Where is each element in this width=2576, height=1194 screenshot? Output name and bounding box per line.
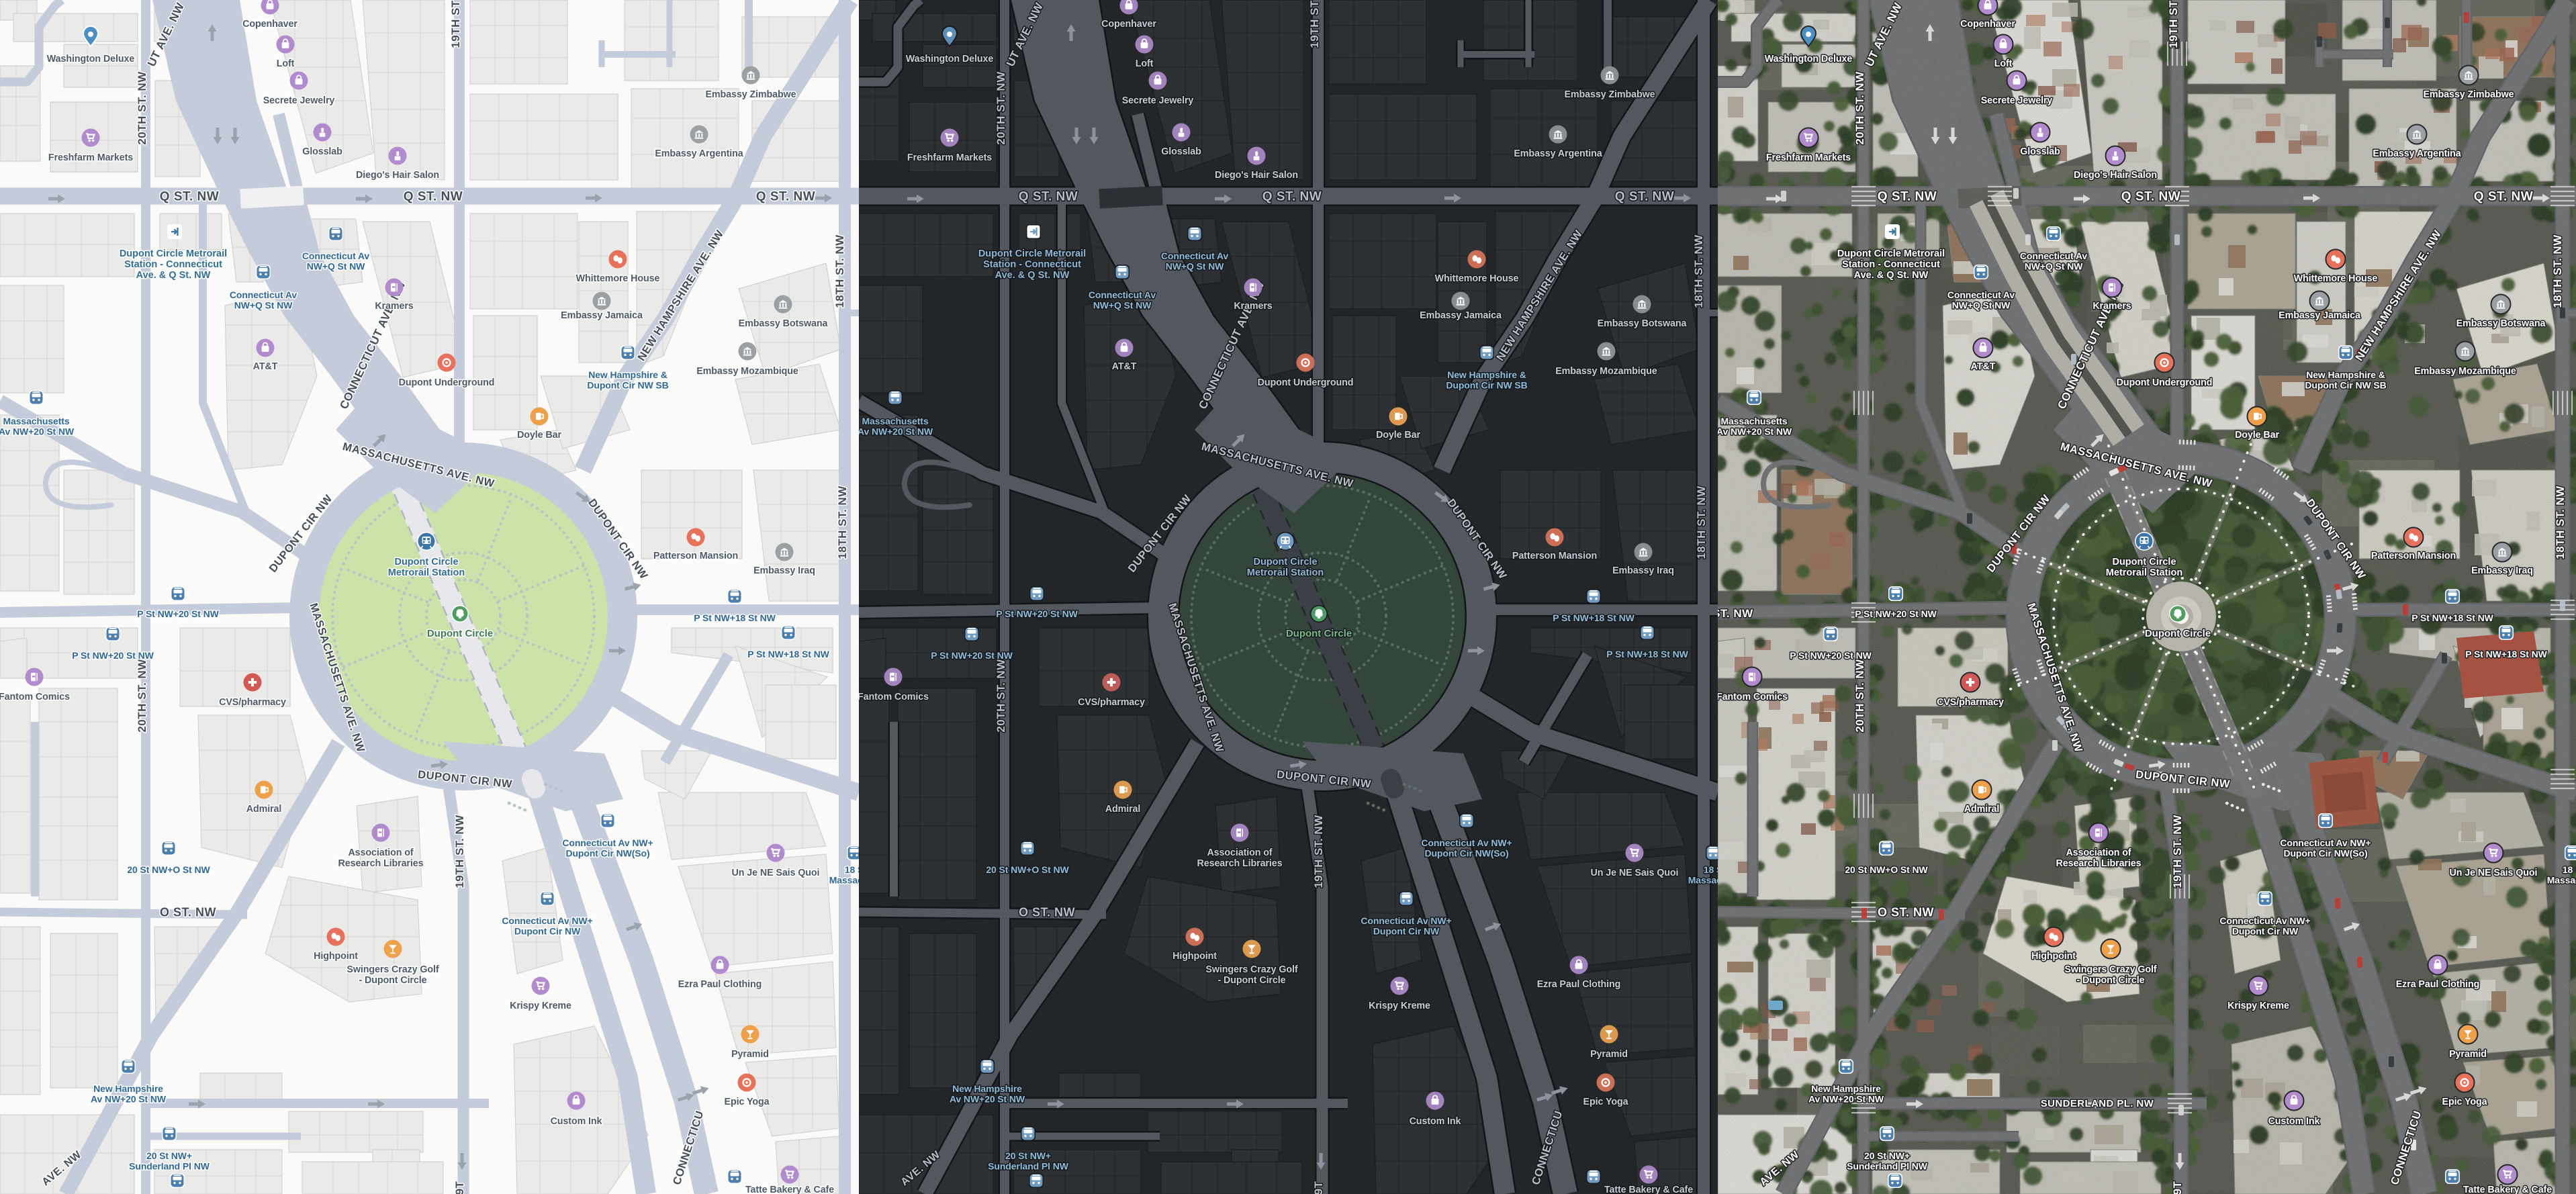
svg-text:Diego's Hair Salon: Diego's Hair Salon — [2074, 170, 2157, 181]
svg-text:20TH ST. NW: 20TH ST. NW — [995, 71, 1007, 145]
svg-text:Swingers Crazy Golf- Dupont Ci: Swingers Crazy Golf- Dupont Circle — [347, 964, 439, 986]
svg-text:Doyle Bar: Doyle Bar — [517, 430, 561, 441]
svg-text:Secrete Jewelry: Secrete Jewelry — [1981, 95, 2053, 106]
svg-text:Embassy Botswana: Embassy Botswana — [739, 318, 829, 329]
svg-text:SUNDERLAND PL. NW: SUNDERLAND PL. NW — [2041, 1098, 2154, 1109]
svg-text:P St NW+20 St NW: P St NW+20 St NW — [996, 608, 1078, 619]
svg-text:P St NW+18 St NW: P St NW+18 St NW — [694, 612, 776, 623]
svg-text:P St NW+20 St NW: P St NW+20 St NW — [931, 650, 1013, 661]
svg-text:Fantom Comics: Fantom Comics — [858, 692, 929, 702]
svg-text:Fantom Comics: Fantom Comics — [1716, 692, 1788, 702]
svg-text:19TH ST: 19TH ST — [1308, 0, 1321, 48]
svg-text:Embassy Iraq: Embassy Iraq — [753, 565, 815, 576]
svg-text:Copenhaver: Copenhaver — [1101, 19, 1156, 30]
svg-text:Embassy Jamaica: Embassy Jamaica — [561, 310, 643, 321]
svg-text:Connecticut Av NW+Dupont Cir N: Connecticut Av NW+Dupont Cir NW(So) — [562, 837, 653, 859]
svg-text:Embassy Mozambique: Embassy Mozambique — [1555, 366, 1657, 377]
svg-text:20 St NW+O St NW: 20 St NW+O St NW — [986, 864, 1069, 875]
svg-text:Admiral: Admiral — [246, 804, 282, 815]
svg-text:Epic Yoga: Epic Yoga — [2442, 1097, 2488, 1107]
svg-text:New HampshireAv NW+20 St NW: New HampshireAv NW+20 St NW — [950, 1083, 1025, 1105]
svg-text:Connecticut Av NW+Dupont Cir N: Connecticut Av NW+Dupont Cir NW(So) — [2280, 837, 2371, 859]
svg-text:P St NW+20 St NW: P St NW+20 St NW — [72, 650, 154, 661]
svg-text:MassachusettsAv NW+20 St NW: MassachusettsAv NW+20 St NW — [1716, 416, 1792, 437]
svg-text:Embassy Jamaica: Embassy Jamaica — [2279, 310, 2361, 321]
svg-text:Highpoint: Highpoint — [314, 951, 358, 962]
svg-text:Patterson Mansion: Patterson Mansion — [2371, 551, 2456, 561]
svg-text:Connecticut AvNW+Q St NW: Connecticut AvNW+Q St NW — [2020, 250, 2088, 272]
svg-text:Dupont CircleMetrorail Station: Dupont CircleMetrorail Station — [1247, 557, 1324, 578]
svg-text:Custom Ink: Custom Ink — [2268, 1116, 2320, 1127]
svg-text:New Hampshire &Dupont Cir NW S: New Hampshire &Dupont Cir NW SB — [2305, 369, 2386, 391]
svg-text:Un Je NE Sais Quoi: Un Je NE Sais Quoi — [2450, 868, 2538, 878]
svg-text:Tatte Bakery & Cafe: Tatte Bakery & Cafe — [1604, 1185, 1693, 1194]
svg-text:O ST. NW: O ST. NW — [1019, 905, 1075, 919]
svg-text:18TH ST. NW: 18TH ST. NW — [833, 234, 846, 308]
svg-text:18TH ST. NW: 18TH ST. NW — [2554, 486, 2567, 559]
svg-text:Pyramid: Pyramid — [731, 1049, 769, 1060]
svg-text:18TH ST. NW: 18TH ST. NW — [1695, 486, 1708, 559]
svg-text:Connecticut AvNW+Q St NW: Connecticut AvNW+Q St NW — [1161, 250, 1229, 272]
svg-text:19TH ST. NW: 19TH ST. NW — [1312, 815, 1325, 888]
svg-text:Un Je NE Sais Quoi: Un Je NE Sais Quoi — [732, 868, 820, 878]
svg-text:Kramers: Kramers — [375, 301, 413, 312]
svg-text:Krispy Kreme: Krispy Kreme — [1369, 1001, 1430, 1011]
svg-text:New HampshireAv NW+20 St NW: New HampshireAv NW+20 St NW — [1808, 1083, 1884, 1105]
svg-text:CVS/pharmacy: CVS/pharmacy — [219, 697, 286, 708]
svg-text:20 St NW+O St NW: 20 St NW+O St NW — [1845, 864, 1928, 875]
svg-text:Association ofResearch Librari: Association ofResearch Libraries — [2056, 847, 2142, 869]
svg-text:Krispy Kreme: Krispy Kreme — [2227, 1001, 2289, 1011]
svg-text:19TH ST: 19TH ST — [2167, 0, 2180, 48]
svg-text:Connecticut AvNW+Q St NW: Connecticut AvNW+Q St NW — [230, 289, 297, 311]
svg-text:Q ST. NW: Q ST. NW — [1878, 190, 1937, 204]
svg-text:Association ofResearch Librari: Association ofResearch Libraries — [1197, 847, 1283, 869]
svg-text:Q ST. NW: Q ST. NW — [160, 190, 219, 204]
svg-text:Q ST. NW: Q ST. NW — [2474, 190, 2533, 204]
svg-text:Dupont Underground: Dupont Underground — [2117, 377, 2213, 388]
svg-text:19TH ST. NW: 19TH ST. NW — [2171, 815, 2184, 888]
svg-text:Connecticut Av NW+Dupont Cir N: Connecticut Av NW+Dupont Cir NW — [1361, 915, 1451, 937]
svg-text:Admiral: Admiral — [1964, 804, 2000, 815]
svg-text:19TH ST: 19TH ST — [449, 0, 462, 48]
svg-text:Dupont Circle: Dupont Circle — [1286, 628, 1352, 639]
svg-text:Glosslab: Glosslab — [1161, 146, 1201, 157]
svg-text:AT&T: AT&T — [1971, 361, 1996, 372]
svg-text:Epic Yoga: Epic Yoga — [725, 1097, 770, 1107]
svg-text:MassachusettsAv NW+20 St NW: MassachusettsAv NW+20 St NW — [0, 416, 75, 437]
svg-text:Dupont Circle: Dupont Circle — [427, 628, 493, 639]
svg-text:Freshfarm Markets: Freshfarm Markets — [48, 152, 133, 163]
svg-text:Dupont CircleMetrorail Station: Dupont CircleMetrorail Station — [388, 557, 465, 578]
svg-text:Connecticut Av NW+Dupont Cir N: Connecticut Av NW+Dupont Cir NW(So) — [1421, 837, 1512, 859]
svg-text:Embassy Botswana: Embassy Botswana — [2456, 318, 2546, 329]
svg-text:Embassy Mozambique: Embassy Mozambique — [2414, 366, 2516, 377]
svg-text:Ezra Paul Clothing: Ezra Paul Clothing — [2396, 979, 2480, 990]
svg-text:Kramers: Kramers — [2092, 301, 2131, 312]
svg-text:20TH ST. NW: 20TH ST. NW — [136, 659, 148, 733]
svg-text:Pyramid: Pyramid — [1590, 1049, 1628, 1060]
svg-text:Diego's Hair Salon: Diego's Hair Salon — [356, 170, 439, 181]
svg-text:Q ST. NW: Q ST. NW — [756, 190, 815, 204]
svg-text:Tatte Bakery & Cafe: Tatte Bakery & Cafe — [745, 1185, 834, 1194]
svg-text:Embassy Argentina: Embassy Argentina — [1514, 148, 1602, 159]
svg-text:Patterson Mansion: Patterson Mansion — [1512, 551, 1597, 561]
svg-text:Patterson Mansion: Patterson Mansion — [653, 551, 738, 561]
svg-text:Diego's Hair Salon: Diego's Hair Salon — [1215, 170, 1298, 181]
svg-text:Washington Deluxe: Washington Deluxe — [906, 54, 994, 64]
svg-text:Connecticut Av NW+Dupont Cir N: Connecticut Av NW+Dupont Cir NW — [2219, 915, 2310, 937]
svg-text:18TH ST. NW: 18TH ST. NW — [2551, 234, 2564, 308]
svg-text:CVS/pharmacy: CVS/pharmacy — [1078, 697, 1145, 708]
svg-text:CVS/pharmacy: CVS/pharmacy — [1937, 697, 2004, 708]
svg-text:Embassy Botswana: Embassy Botswana — [1598, 318, 1688, 329]
svg-text:Embassy Argentina: Embassy Argentina — [2373, 148, 2461, 159]
svg-text:Ezra Paul Clothing: Ezra Paul Clothing — [678, 979, 762, 990]
svg-text:Embassy Iraq: Embassy Iraq — [2471, 565, 2533, 576]
svg-text:Embassy Jamaica: Embassy Jamaica — [1420, 310, 1502, 321]
svg-text:Admiral: Admiral — [1105, 804, 1141, 815]
svg-text:Q ST. NW: Q ST. NW — [1262, 190, 1322, 204]
svg-text:New Hampshire &Dupont Cir NW S: New Hampshire &Dupont Cir NW SB — [587, 369, 668, 391]
svg-text:19T: 19T — [1312, 1181, 1325, 1194]
svg-text:Freshfarm Markets: Freshfarm Markets — [1766, 152, 1851, 163]
svg-text:Whittemore House: Whittemore House — [2294, 273, 2378, 284]
svg-text:Doyle Bar: Doyle Bar — [1376, 430, 1420, 441]
svg-text:Loft: Loft — [1136, 58, 1154, 69]
svg-text:Embassy Iraq: Embassy Iraq — [1612, 565, 1674, 576]
svg-text:P St NW+20 St NW: P St NW+20 St NW — [1855, 608, 1937, 619]
svg-text:New Hampshire &Dupont Cir NW S: New Hampshire &Dupont Cir NW SB — [1446, 369, 1527, 391]
svg-text:Whittemore House: Whittemore House — [1435, 273, 1519, 284]
svg-text:MassachusettsAv NW+20 St NW: MassachusettsAv NW+20 St NW — [858, 416, 933, 437]
svg-text:Dupont Circle: Dupont Circle — [2145, 628, 2211, 639]
svg-text:Loft: Loft — [1994, 58, 2013, 69]
svg-text:P St NW+18 St NW: P St NW+18 St NW — [747, 649, 829, 659]
svg-text:Doyle Bar: Doyle Bar — [2235, 430, 2279, 441]
svg-text:Q ST. NW: Q ST. NW — [1019, 190, 1078, 204]
svg-text:Connecticut AvNW+Q St NW: Connecticut AvNW+Q St NW — [1089, 289, 1156, 311]
svg-text:P St NW+18 St NW: P St NW+18 St NW — [2465, 649, 2547, 659]
svg-text:Whittemore House: Whittemore House — [576, 273, 660, 284]
svg-text:Freshfarm Markets: Freshfarm Markets — [907, 152, 992, 163]
svg-text:Q ST. NW: Q ST. NW — [1615, 190, 1674, 204]
svg-text:New HampshireAv NW+20 St NW: New HampshireAv NW+20 St NW — [91, 1083, 167, 1105]
svg-text:Connecticut AvNW+Q St NW: Connecticut AvNW+Q St NW — [302, 250, 370, 272]
svg-text:20TH ST. NW: 20TH ST. NW — [136, 71, 148, 145]
svg-text:Secrete Jewelry: Secrete Jewelry — [263, 95, 335, 106]
svg-text:Copenhaver: Copenhaver — [242, 19, 297, 30]
svg-text:AT&T: AT&T — [1112, 361, 1137, 372]
svg-text:Glosslab: Glosslab — [2020, 146, 2060, 157]
svg-text:Embassy Mozambique: Embassy Mozambique — [696, 366, 798, 377]
svg-text:Q ST. NW: Q ST. NW — [404, 190, 463, 204]
svg-text:Embassy Zimbabwe: Embassy Zimbabwe — [705, 89, 796, 100]
svg-text:20TH ST. NW: 20TH ST. NW — [1853, 659, 1866, 733]
svg-text:Loft: Loft — [277, 58, 295, 69]
svg-text:O ST. NW: O ST. NW — [160, 905, 216, 919]
svg-text:18TH ST. NW: 18TH ST. NW — [836, 486, 849, 559]
svg-text:Tatte Bakery & Cafe: Tatte Bakery & Cafe — [2463, 1185, 2552, 1194]
svg-text:Embassy Argentina: Embassy Argentina — [655, 148, 743, 159]
svg-text:P St NW+20 St NW: P St NW+20 St NW — [1790, 650, 1872, 661]
svg-text:O ST. NW: O ST. NW — [1878, 905, 1934, 919]
svg-text:20TH ST. NW: 20TH ST. NW — [1853, 71, 1866, 145]
svg-text:Dupont Underground: Dupont Underground — [399, 377, 495, 388]
svg-text:P St NW+18 St NW: P St NW+18 St NW — [1606, 649, 1688, 659]
svg-text:19TH ST. NW: 19TH ST. NW — [453, 815, 466, 888]
svg-text:Copenhaver: Copenhaver — [1960, 19, 2015, 30]
svg-text:20 St NW+O St NW: 20 St NW+O St NW — [127, 864, 210, 875]
svg-text:Glosslab: Glosslab — [302, 146, 342, 157]
svg-text:AT&T: AT&T — [253, 361, 278, 372]
svg-text:Swingers Crazy Golf- Dupont Ci: Swingers Crazy Golf- Dupont Circle — [2064, 964, 2156, 986]
svg-text:Highpoint: Highpoint — [1172, 951, 1217, 962]
svg-text:P St NW+18 St NW: P St NW+18 St NW — [2411, 612, 2493, 623]
svg-text:Kramers: Kramers — [1234, 301, 1272, 312]
svg-text:18TH ST. NW: 18TH ST. NW — [1692, 234, 1705, 308]
svg-text:Ezra Paul Clothing: Ezra Paul Clothing — [1537, 979, 1621, 990]
svg-text:P St NW+20 St NW: P St NW+20 St NW — [137, 608, 219, 619]
svg-text:19T: 19T — [453, 1181, 466, 1194]
svg-text:Washington Deluxe: Washington Deluxe — [1765, 54, 1853, 64]
svg-text:Fantom Comics: Fantom Comics — [0, 692, 70, 702]
svg-text:Custom Ink: Custom Ink — [1410, 1116, 1461, 1127]
svg-text:Custom Ink: Custom Ink — [551, 1116, 602, 1127]
svg-text:20TH ST. NW: 20TH ST. NW — [995, 659, 1007, 733]
svg-text:Q ST. NW: Q ST. NW — [2121, 190, 2180, 204]
svg-text:Secrete Jewelry: Secrete Jewelry — [1122, 95, 1194, 106]
svg-text:Washington Deluxe: Washington Deluxe — [47, 54, 135, 64]
svg-text:19T: 19T — [2171, 1181, 2184, 1194]
svg-text:Connecticut Av NW+Dupont Cir N: Connecticut Av NW+Dupont Cir NW — [502, 915, 592, 937]
svg-text:Connecticut AvNW+Q St NW: Connecticut AvNW+Q St NW — [1947, 289, 2015, 311]
svg-text:Un Je NE Sais Quoi: Un Je NE Sais Quoi — [1591, 868, 1679, 878]
svg-text:Krispy Kreme: Krispy Kreme — [510, 1001, 571, 1011]
svg-text:Association ofResearch Librari: Association ofResearch Libraries — [338, 847, 424, 869]
svg-text:Highpoint: Highpoint — [2031, 951, 2076, 962]
svg-text:Pyramid: Pyramid — [2449, 1049, 2487, 1060]
svg-text:Epic Yoga: Epic Yoga — [1583, 1097, 1629, 1107]
svg-text:P St NW+18 St NW: P St NW+18 St NW — [1553, 612, 1635, 623]
svg-text:Embassy Zimbabwe: Embassy Zimbabwe — [1564, 89, 1655, 100]
svg-text:Dupont Underground: Dupont Underground — [1258, 377, 1354, 388]
svg-text:Dupont CircleMetrorail Station: Dupont CircleMetrorail Station — [2106, 557, 2182, 578]
svg-text:Swingers Crazy Golf- Dupont Ci: Swingers Crazy Golf- Dupont Circle — [1205, 964, 1297, 986]
svg-text:Embassy Zimbabwe: Embassy Zimbabwe — [2423, 89, 2514, 100]
